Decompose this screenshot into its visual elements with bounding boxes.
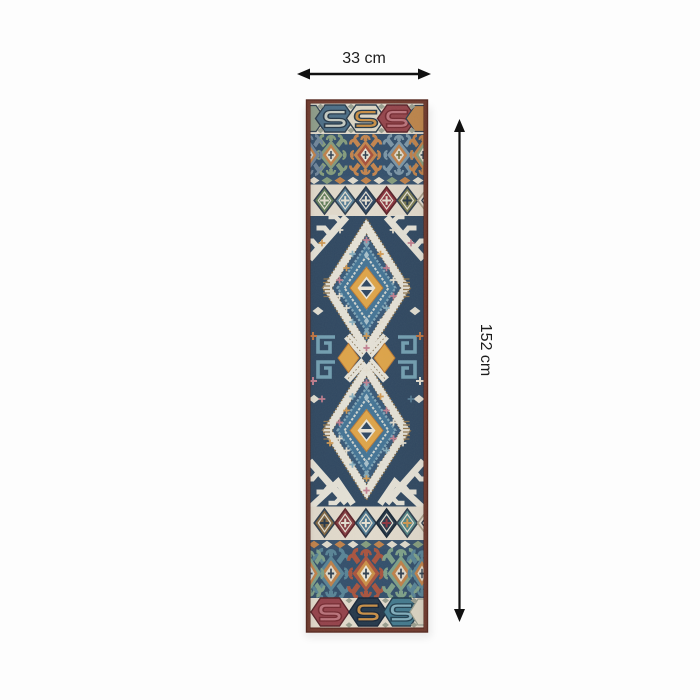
svg-text:152 cm: 152 cm xyxy=(477,324,494,376)
svg-text:33 cm: 33 cm xyxy=(342,50,386,67)
